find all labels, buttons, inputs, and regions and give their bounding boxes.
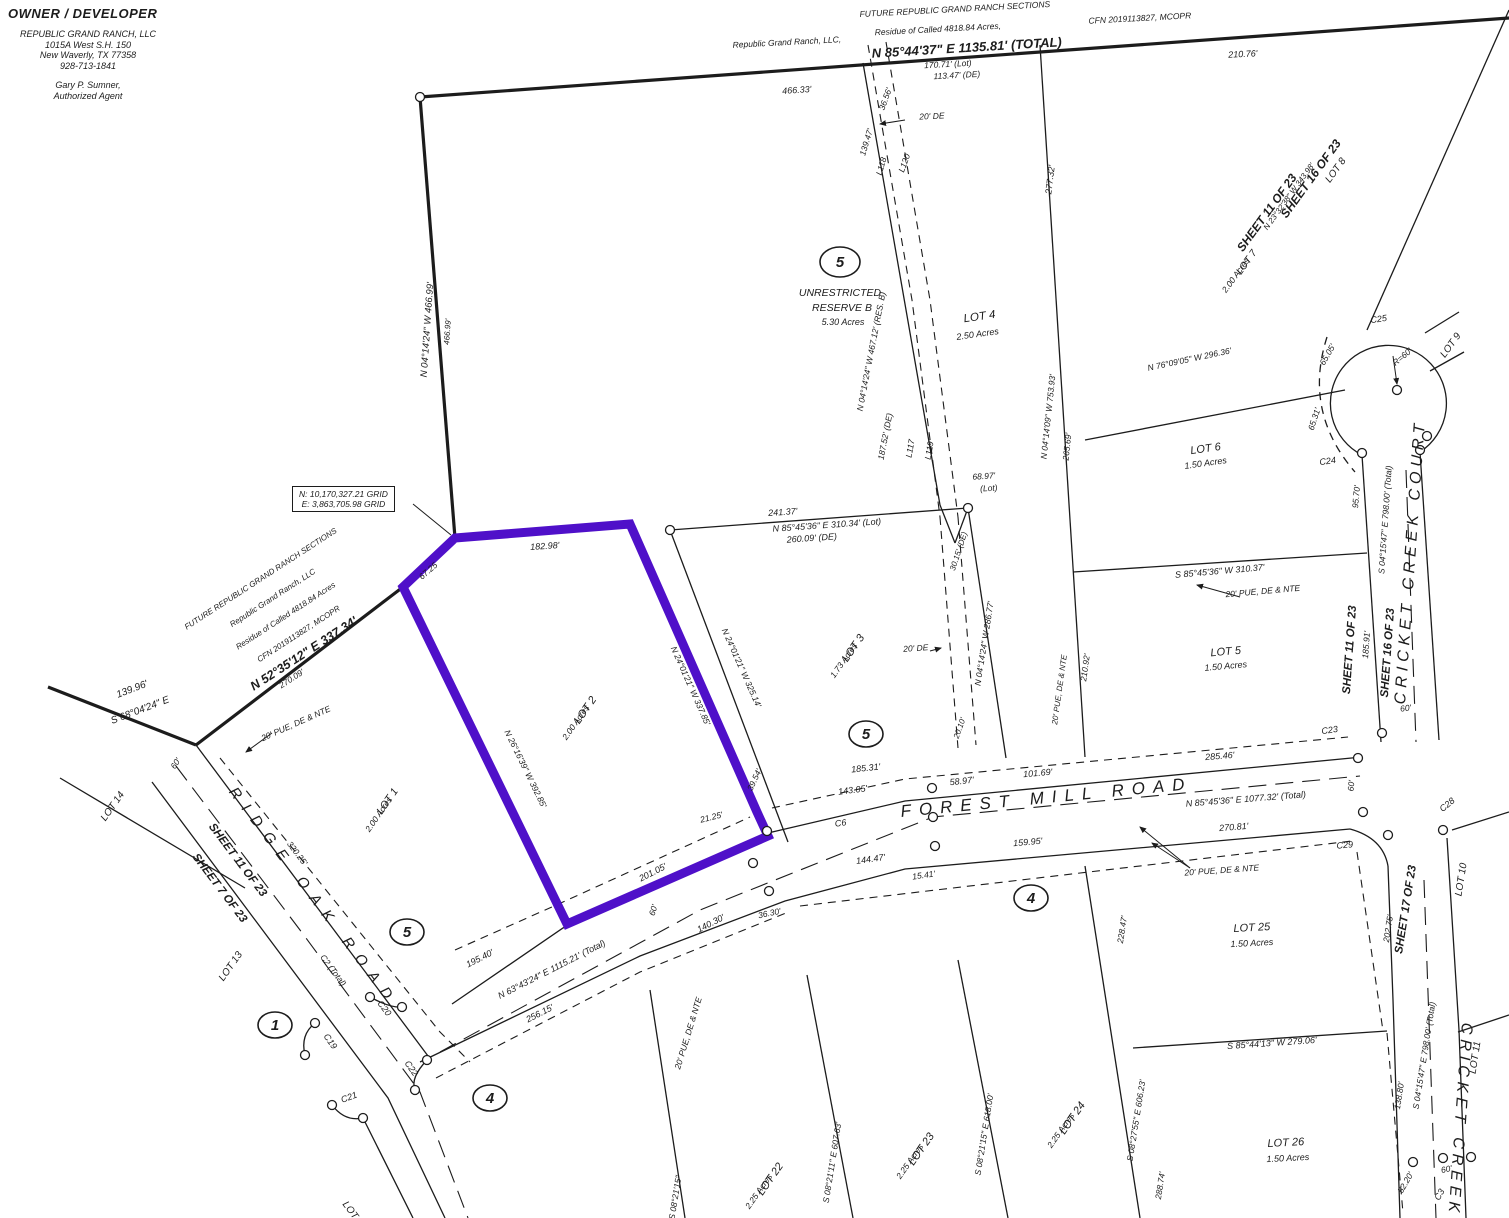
map-label: C25 — [1370, 313, 1389, 325]
map-label: 68.97' — [972, 470, 996, 482]
map-label: 20' PUE, DE & NTE — [1183, 862, 1260, 877]
lot-line — [1425, 312, 1459, 333]
map-labels: FUTURE REPUBLIC GRAND RANCH SECTIONSResi… — [99, 0, 1484, 1218]
map-label: 21.25' — [698, 809, 724, 825]
map-label: 185.91' — [1360, 630, 1372, 659]
map-label: 36.30' — [757, 906, 782, 921]
easement-dashed-line — [1357, 852, 1383, 1031]
monument-node — [1439, 1154, 1448, 1163]
map-label: C19 — [322, 1032, 340, 1051]
monument-node — [1358, 449, 1367, 458]
road-centerline — [440, 776, 1360, 1052]
map-label: 1.73 Acres — [828, 640, 860, 679]
monument-node — [311, 1019, 320, 1028]
monument-node — [1354, 754, 1363, 763]
monument-node — [1384, 831, 1393, 840]
monument-node — [328, 1101, 337, 1110]
map-label: 65.05' — [1317, 342, 1337, 367]
monument-node — [411, 1086, 420, 1095]
map-label: SHEET 11 OF 23 — [1341, 605, 1359, 695]
map-label: CRICKET CREEK COURT — [1438, 1022, 1475, 1218]
map-label: N 76°09'05" W 296.36' — [1147, 345, 1233, 373]
map-label: 466.99' — [442, 318, 453, 345]
grid-east-value: E: 3,863,705.98 GRID — [299, 499, 388, 509]
monument-node — [931, 842, 940, 851]
block-number-text: 4 — [485, 1090, 495, 1107]
map-label: 113.47' (DE) — [933, 69, 980, 81]
map-label: S 08°27'55" E 606.23' — [1125, 1079, 1148, 1162]
map-label: Residue of Called 4818.84 Acres, — [875, 21, 1002, 38]
map-label: 285.46' — [1204, 750, 1235, 762]
map-label: C29 — [1336, 839, 1353, 850]
map-label: 288.74' — [1153, 1171, 1167, 1201]
monument-node — [765, 887, 774, 896]
block-number-text: 5 — [836, 254, 845, 271]
lot-2-highlight-outline[interactable] — [403, 524, 768, 924]
map-label: CFN 2019113827, MCOPR — [1088, 10, 1191, 25]
block-number-text: 5 — [403, 924, 412, 941]
map-label: 139.96' — [115, 678, 150, 700]
monument-node — [416, 93, 425, 102]
lot-line — [1367, 10, 1509, 330]
map-label: 20' DE — [918, 110, 945, 121]
map-label: 20' DE — [902, 642, 929, 654]
monument-node — [763, 827, 772, 836]
map-label: 1.50 Acres — [1184, 455, 1228, 471]
map-label: 2.00 Acres — [362, 794, 394, 834]
lot-line — [1085, 866, 1140, 1218]
map-label: 466.33' — [782, 84, 812, 96]
map-label: N 85°45'36" E 1077.32' (Total) — [1185, 789, 1306, 808]
map-label: 187.52' (DE) — [876, 412, 895, 461]
easement-dashed-line — [800, 841, 1352, 906]
map-label: 202.75' — [1381, 914, 1395, 944]
road-name-forest-mill-road: FOREST MILL ROAD — [900, 774, 1193, 821]
map-label: 5.30 Acres — [822, 317, 865, 327]
lot-line — [958, 960, 1008, 1218]
map-label: 182.98' — [530, 540, 560, 552]
map-label: SHEET 17 OF 23 — [1393, 864, 1419, 955]
map-label: 60' — [1346, 779, 1357, 791]
lot-line — [1085, 390, 1345, 440]
map-label: LOT 5 — [1210, 645, 1242, 660]
monument-node — [301, 1051, 310, 1060]
monument-node — [1359, 808, 1368, 817]
map-label: 2.50 Acres — [955, 326, 1000, 342]
map-label: 60' — [1399, 702, 1412, 713]
map-label: N 04°14'24" W 466.99' — [419, 281, 437, 378]
map-label: 138.80' — [1392, 1081, 1406, 1110]
map-label: 20' PUE, DE & NTE — [1224, 583, 1301, 600]
plat-sheet: OWNER / DEVELOPER REPUBLIC GRAND RANCH, … — [0, 0, 1509, 1218]
curve-line — [1350, 829, 1388, 866]
map-label: C2 (Total) — [318, 952, 348, 988]
map-label: FUTURE REPUBLIC GRAND RANCH SECTIONS — [183, 526, 339, 632]
map-label: 2.25 Acres — [893, 1141, 925, 1181]
map-label: 101.69' — [1023, 767, 1053, 780]
map-label: S 85°44'13" W 279.06' — [1227, 1035, 1318, 1051]
monument-node — [964, 504, 973, 513]
map-label: LOT 13 — [217, 949, 245, 983]
map-label: LOT — [340, 1199, 361, 1218]
map-label: 2.25 Acres — [1044, 1110, 1076, 1150]
map-label: 2.00 Acres — [1219, 255, 1252, 295]
map-label: 241.37' — [767, 506, 798, 518]
leader-line — [413, 504, 451, 535]
map-label: S 04°15'47" E 798.00' (Total) — [1376, 465, 1394, 574]
map-label: 15.41' — [912, 868, 936, 881]
map-label: C21 — [340, 1090, 359, 1105]
owner-developer-block: OWNER / DEVELOPER REPUBLIC GRAND RANCH, … — [8, 6, 193, 101]
map-label: LOT 14 — [99, 789, 127, 823]
map-label: 159.95' — [1013, 836, 1043, 849]
map-label: 60' — [647, 903, 660, 917]
map-label: 95.70' — [1350, 485, 1362, 509]
map-label: 20' PUE, DE & NTE — [1050, 653, 1069, 726]
monument-node — [1378, 729, 1387, 738]
map-label: UNRESTRICTED — [799, 287, 882, 299]
map-label: C6 — [834, 817, 847, 829]
map-label: 1.50 Acres — [1266, 1152, 1310, 1164]
map-label: 2.25 Acres — [742, 1171, 774, 1211]
owner-company-line: 928-713-1841 — [8, 61, 168, 72]
map-label: Republic Grand Ranch, LLC, — [732, 34, 841, 50]
monument-node — [398, 1003, 407, 1012]
map-label: C3 — [1432, 1187, 1446, 1202]
map-label: 277.32' — [1043, 164, 1057, 196]
map-label: L120 — [896, 152, 912, 173]
map-label: FUTURE REPUBLIC GRAND RANCH SECTIONS — [859, 0, 1050, 19]
map-label: N 24°01'21" W 325.14' — [720, 627, 764, 709]
lot-line — [1362, 455, 1381, 742]
monument-node — [1467, 1153, 1476, 1162]
owner-developer-heading: OWNER / DEVELOPER — [8, 6, 193, 21]
map-label: 210.76' — [1227, 48, 1258, 60]
block-number-text: 1 — [271, 1017, 279, 1034]
map-label: LOT 10 — [1453, 862, 1469, 897]
map-label: C24 — [1319, 455, 1337, 467]
road-name-cricket-creek-court: CRICKET CREEK COURT — [1392, 419, 1429, 705]
monument-node — [1393, 386, 1402, 395]
map-label: C28 — [1438, 796, 1457, 814]
easement-dashed-line — [436, 913, 786, 1078]
map-label: N 04°14'09" W 753.93' — [1039, 373, 1058, 459]
lot-2-highlight[interactable] — [403, 524, 768, 924]
map-label: LOT 4 — [963, 309, 996, 325]
survey-monument-nodes — [301, 93, 1476, 1167]
lot-line — [420, 829, 1350, 1062]
map-label: 260.09' (DE) — [785, 531, 837, 545]
map-label: 143.05' — [838, 783, 869, 797]
monument-node — [666, 526, 675, 535]
map-label: (Lot) — [980, 482, 998, 493]
map-label: 58.97' — [949, 775, 974, 788]
map-label: 1.50 Acres — [1204, 659, 1248, 673]
map-label: 256.15' — [523, 1002, 555, 1025]
map-label: LOT 26 — [1267, 1136, 1305, 1150]
map-label: 270.81' — [1218, 821, 1249, 833]
map-label: 20' PUE, DE & NTE — [259, 703, 333, 743]
owner-company-line: 1015A West S.H. 150 — [8, 40, 168, 51]
map-label: L117 — [904, 438, 917, 458]
map-label: 140.30' — [695, 912, 726, 934]
grid-north-value: N: 10,170,327.21 GRID — [299, 489, 388, 499]
map-label: 265.69' — [1060, 432, 1073, 462]
monument-node — [366, 993, 375, 1002]
owner-company-line: New Waverly, TX 77358 — [8, 50, 168, 61]
lot-line — [363, 1118, 413, 1218]
easement-dashed-line — [220, 758, 470, 1062]
map-label: LOT 25 — [1233, 921, 1271, 935]
map-label: 144.47' — [855, 852, 886, 866]
map-label: S 04°15'47" E 798.00' (Total) — [1411, 1001, 1438, 1110]
grid-coordinate-note: N: 10,170,327.21 GRID E: 3,863,705.98 GR… — [292, 486, 395, 512]
leader-line — [930, 648, 941, 651]
map-label: LOT 9 — [1438, 331, 1463, 360]
map-label: 195.40' — [464, 947, 495, 969]
monument-node — [1409, 1158, 1418, 1167]
map-label: RESERVE B — [812, 302, 872, 314]
owner-agent-line: Gary P. Sumner, — [8, 80, 168, 91]
map-label: 185.31' — [851, 761, 881, 774]
map-label: 39.54' — [745, 767, 764, 792]
owner-company-line: REPUBLIC GRAND RANCH, LLC — [8, 29, 168, 40]
map-label: C22 — [403, 1059, 421, 1078]
map-label: 139.47' — [857, 127, 875, 157]
block-number-text: 4 — [1026, 890, 1036, 907]
map-label: 170.71' (Lot) — [924, 58, 972, 70]
leader-line — [1152, 843, 1190, 868]
block-number-text: 5 — [862, 726, 871, 743]
map-label: 65.31' — [1306, 406, 1323, 431]
owner-company-lines: REPUBLIC GRAND RANCH, LLC1015A West S.H.… — [8, 29, 193, 71]
map-label: 60' — [168, 756, 183, 771]
map-label: 228.47' — [1115, 915, 1129, 945]
map-label: 20' PUE, DE & NTE — [672, 996, 704, 1072]
monument-node — [1439, 826, 1448, 835]
map-label: L118 — [874, 156, 889, 177]
map-label: 36.56' — [877, 86, 894, 111]
monument-node — [928, 784, 937, 793]
monument-node — [423, 1056, 432, 1065]
map-label: 30.15' (DE) — [948, 530, 969, 571]
map-label: L119 — [923, 440, 936, 460]
lot-line — [1452, 812, 1509, 830]
monument-node — [749, 859, 758, 868]
leader-line — [880, 120, 905, 124]
plat-map: S 85°45'36" W 182.98' 555144 FUTURE REPU… — [0, 0, 1509, 1218]
map-label: S 08°21'11" E 607.63' — [821, 1121, 844, 1204]
map-label: 1.50 Acres — [1230, 937, 1274, 949]
owner-agent-line: Authorized Agent — [8, 91, 168, 102]
map-label: C23 — [1321, 724, 1339, 736]
map-label: R=60' — [1390, 346, 1414, 368]
map-label: N 04°14'24" W 286.77' — [972, 600, 995, 686]
map-label: 20.10' — [951, 716, 967, 741]
monument-node — [359, 1114, 368, 1123]
map-label: 210.92' — [1078, 653, 1092, 683]
map-label: LOT 6 — [1190, 441, 1223, 457]
map-label: 2.00 Acres — [559, 702, 591, 742]
map-label: 67.25 — [417, 560, 440, 582]
owner-agent-lines: Gary P. Sumner,Authorized Agent — [8, 80, 193, 101]
